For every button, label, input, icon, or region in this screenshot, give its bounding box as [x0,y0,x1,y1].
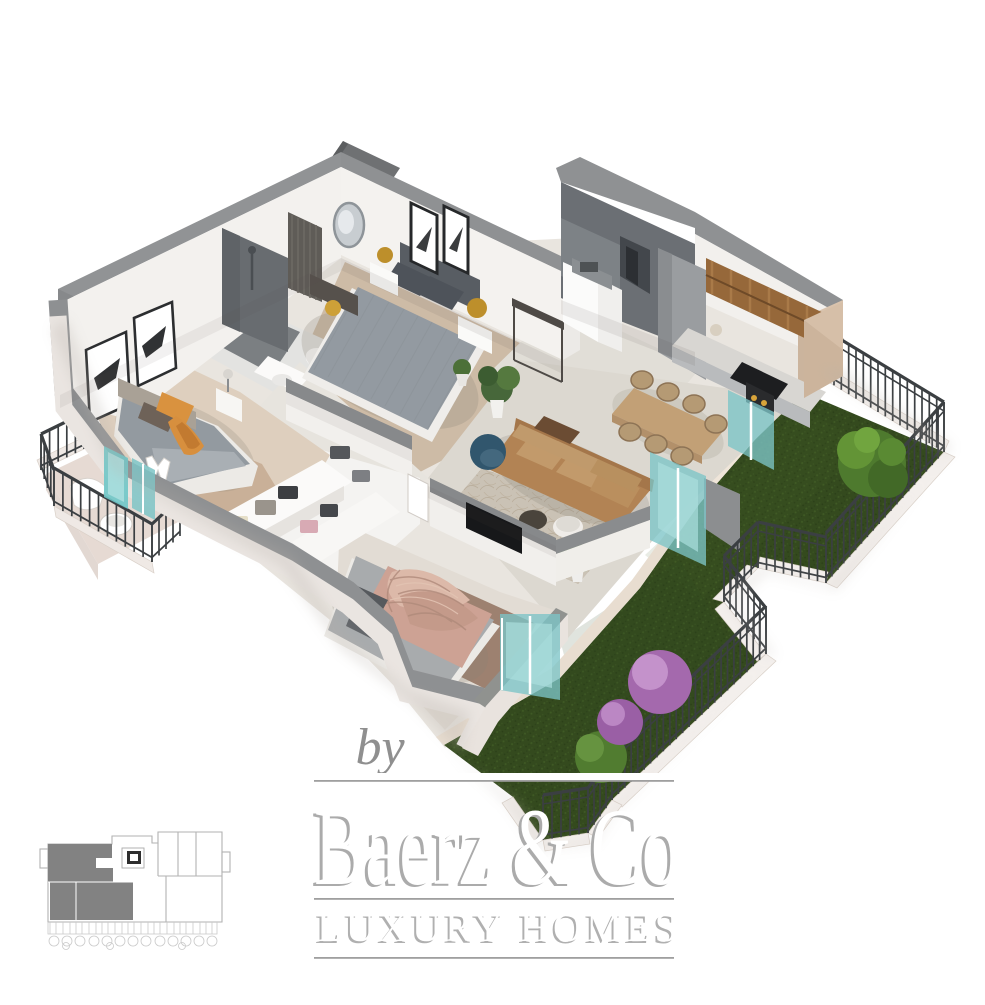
svg-text:Baerz & Co: Baerz & Co [314,786,680,908]
svg-text:by: by [355,719,405,776]
